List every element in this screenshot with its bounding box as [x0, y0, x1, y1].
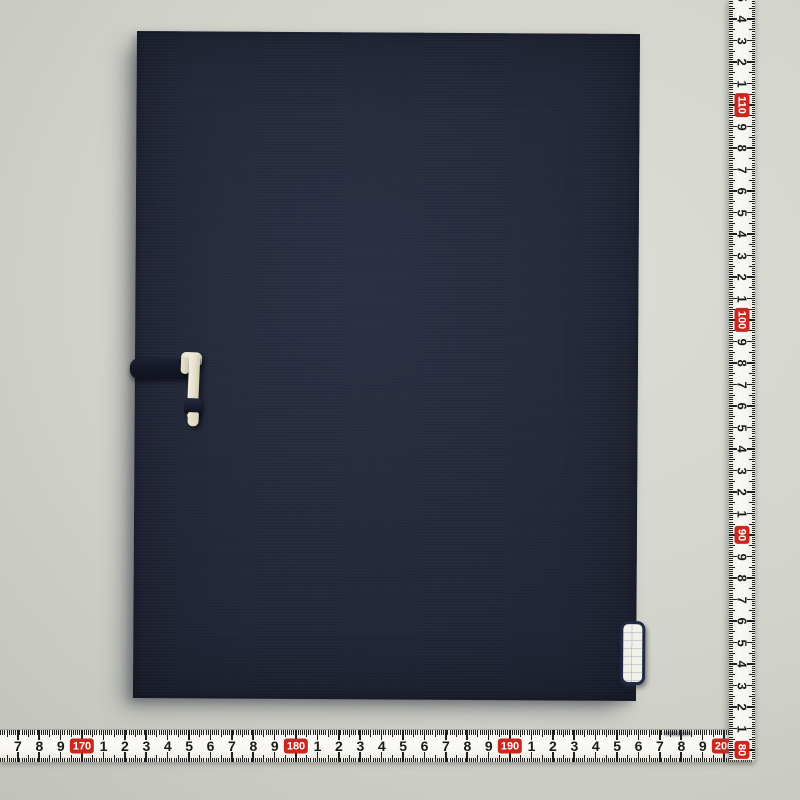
ruler-tick: [422, 758, 423, 763]
ruler-tick: [752, 111, 756, 112]
clasp-hook: [177, 350, 214, 433]
ruler-tick: [729, 455, 733, 456]
ruler-tick: [729, 395, 735, 396]
ruler-tick: [150, 758, 151, 763]
ruler-tick: [729, 668, 733, 669]
ruler-tick: [248, 758, 249, 763]
ruler-tick: [729, 96, 733, 97]
ruler-tick: [726, 730, 727, 735]
ruler-tick: [122, 730, 123, 735]
ruler-tick: [26, 730, 27, 735]
ruler-tick: [437, 758, 438, 763]
ruler-tick: [347, 758, 348, 763]
ruler-tick: [96, 730, 97, 735]
ruler-tick: [392, 730, 393, 737]
ruler-tick: [729, 156, 733, 157]
ruler-tick: [47, 730, 48, 735]
ruler-tick: [729, 605, 733, 606]
ruler-tick: [729, 266, 735, 267]
ruler-tick: [379, 758, 380, 763]
ruler-tick: [45, 730, 46, 735]
ruler-tick: [197, 758, 198, 763]
ruler-tick: [752, 756, 756, 757]
ruler-tick: [752, 580, 756, 581]
ruler-tick: [729, 307, 733, 308]
ruler-label: 8: [35, 738, 43, 754]
ruler-tick: [452, 758, 453, 763]
ruler-tick: [729, 747, 733, 748]
ruler-tick: [752, 326, 756, 327]
ruler-tick: [729, 225, 733, 226]
ruler-tick: [505, 730, 506, 735]
ruler-tick: [752, 754, 756, 755]
ruler-tick: [729, 279, 733, 280]
ruler-tick: [752, 747, 756, 748]
ruler-tick: [752, 311, 756, 312]
ruler-tick: [569, 758, 570, 763]
ruler-tick: [752, 367, 756, 368]
ruler-tick: [111, 758, 112, 763]
ruler-tick: [752, 98, 756, 99]
ruler-tick: [752, 461, 756, 462]
ruler-tick: [133, 758, 134, 763]
ruler-tick: [752, 672, 756, 673]
ruler-tick: [729, 659, 733, 660]
ruler-tick: [729, 124, 733, 125]
ruler-tick: [308, 758, 309, 763]
ruler-tick: [752, 737, 756, 738]
ruler-tick: [56, 758, 57, 763]
ruler-tick: [270, 758, 271, 763]
ruler-tick: [520, 755, 521, 762]
ruler-tick: [199, 755, 200, 762]
ruler-tick: [729, 623, 733, 624]
ruler-tick: [752, 511, 756, 512]
ruler-tick: [752, 281, 756, 282]
ruler-tick: [729, 631, 735, 632]
ruler-tick: [257, 758, 258, 763]
ruler-tick: [752, 442, 756, 443]
ruler-tick: [332, 730, 333, 735]
ruler-tick: [729, 42, 733, 43]
ruler-tick: [137, 758, 138, 763]
ruler-tick: [752, 238, 756, 239]
ruler-tick: [729, 199, 733, 200]
ruler-label-red: 170: [70, 739, 94, 754]
ruler-tick: [729, 145, 733, 146]
ruler-tick: [281, 758, 282, 763]
ruler-tick: [729, 98, 733, 99]
ruler-tick: [752, 74, 756, 75]
ruler-tick: [752, 421, 756, 422]
ruler-tick: [752, 236, 756, 237]
ruler-tick: [105, 758, 106, 763]
ruler-tick: [752, 666, 756, 667]
ruler-tick: [499, 730, 500, 737]
ruler-tick: [655, 730, 656, 735]
ruler-tick: [729, 709, 733, 710]
ruler-tick: [752, 431, 756, 432]
ruler-tick: [729, 182, 733, 183]
ruler-tick: [392, 755, 393, 762]
ruler-tick: [729, 698, 733, 699]
ruler-tick: [729, 666, 733, 667]
ruler-tick: [11, 730, 12, 735]
ruler-tick: [700, 730, 701, 735]
ruler-tick: [729, 143, 733, 144]
ruler-label: 1: [735, 80, 750, 87]
ruler-tick: [411, 758, 412, 763]
ruler-tick: [749, 502, 755, 503]
ruler-tick: [295, 752, 297, 762]
ruler-tick: [176, 730, 177, 735]
ruler-tick: [752, 31, 756, 32]
ruler-tick: [713, 755, 714, 762]
ruler-tick: [229, 730, 230, 735]
ruler-tick: [203, 758, 204, 763]
ruler-tick: [749, 51, 755, 52]
ruler-tick: [752, 457, 756, 458]
ruler-tick: [752, 268, 756, 269]
ruler-tick: [752, 70, 756, 71]
ruler-tick: [206, 730, 207, 735]
ruler-tick: [107, 730, 108, 735]
ruler-tick: [471, 730, 472, 735]
ruler-tick: [161, 758, 162, 763]
ruler-tick: [729, 173, 733, 174]
ruler-tick: [206, 758, 207, 763]
ruler-tick: [729, 12, 733, 13]
ruler-tick: [729, 378, 733, 379]
ruler-tick: [319, 758, 320, 763]
ruler-tick: [32, 758, 33, 763]
ruler-tick: [447, 758, 448, 763]
ruler-tick: [246, 730, 247, 735]
ruler-tick: [518, 730, 519, 735]
ruler-tick: [749, 309, 755, 310]
ruler-tick: [383, 730, 384, 735]
ruler-tick: [752, 296, 756, 297]
ruler-tick: [156, 730, 157, 737]
ruler-tick: [75, 730, 76, 735]
ruler-tick: [343, 730, 344, 735]
ruler-tick: [67, 730, 68, 735]
ruler-tick: [729, 300, 733, 301]
ruler-tick: [584, 730, 585, 737]
ruler-tick: [28, 730, 29, 737]
ruler-tick: [156, 755, 157, 762]
ruler-tick: [752, 242, 756, 243]
ruler-tick: [649, 755, 650, 762]
ruler-tick: [729, 700, 733, 701]
ruler-tick: [64, 758, 65, 763]
ruler-tick: [729, 408, 733, 409]
ruler-tick: [729, 66, 733, 67]
ruler-tick: [729, 702, 733, 703]
ruler-tick: [717, 758, 718, 763]
ruler-label: 9: [271, 738, 279, 754]
ruler-tick: [752, 668, 756, 669]
ruler-tick: [114, 755, 115, 762]
ruler-tick: [729, 560, 733, 561]
ruler-tick: [752, 292, 756, 293]
ruler-label: 9: [57, 738, 65, 754]
ruler-tick: [752, 651, 756, 652]
ruler-tick: [752, 429, 756, 430]
ruler-tick: [752, 724, 756, 725]
ruler-tick: [729, 737, 733, 738]
ruler-tick: [298, 730, 299, 735]
ruler-tick: [546, 730, 547, 735]
ruler-tick: [353, 758, 354, 763]
ruler-tick: [233, 758, 234, 763]
ruler-tick: [548, 730, 549, 735]
ruler-tick: [236, 758, 237, 763]
ruler-tick: [752, 479, 756, 480]
ruler-tick: [602, 730, 603, 735]
ruler-tick: [749, 94, 755, 95]
ruler-tick: [244, 758, 245, 763]
ruler-label: 1: [314, 738, 322, 754]
ruler-tick: [729, 85, 733, 86]
ruler-tick: [118, 758, 119, 763]
ruler-tick: [713, 730, 714, 737]
ruler-tick: [355, 758, 356, 763]
ruler-tick: [542, 755, 543, 762]
ruler-tick: [0, 730, 1, 735]
ruler-tick: [752, 519, 756, 520]
ruler-tick: [729, 734, 733, 735]
ruler-tick: [752, 208, 756, 209]
ruler-tick: [752, 347, 756, 348]
ruler-tick: [563, 730, 564, 737]
ruler-tick: [77, 730, 78, 735]
ruler-tick: [749, 137, 755, 138]
ruler-tick: [631, 758, 632, 763]
ruler-label: 3: [735, 252, 750, 259]
ruler-tick: [435, 755, 436, 762]
ruler-tick: [546, 758, 547, 763]
ruler-tick: [582, 730, 583, 735]
ruler-tick: [462, 758, 463, 763]
ruler-tick: [629, 730, 630, 735]
ruler-tick: [69, 758, 70, 763]
ruler-label: 9: [699, 738, 707, 754]
ruler-tick: [426, 730, 427, 735]
ruler-tick: [752, 270, 756, 271]
ruler-tick: [276, 730, 277, 735]
ruler-tick: [749, 481, 755, 482]
ruler-tick: [729, 743, 733, 744]
ruler-tick: [729, 55, 733, 56]
ruler-tick: [653, 730, 654, 735]
ruler-tick: [484, 758, 485, 763]
ruler-tick: [129, 730, 130, 735]
edge-label: [620, 621, 645, 685]
ruler-tick: [201, 758, 202, 763]
ruler-tick: [752, 627, 756, 628]
ruler-tick: [729, 739, 735, 740]
ruler-tick: [752, 132, 756, 133]
ruler-tick: [729, 246, 733, 247]
ruler-tick: [345, 730, 346, 735]
ruler-tick: [366, 758, 367, 763]
ruler-tick: [729, 214, 733, 215]
ruler-tick: [458, 730, 459, 735]
ruler-tick: [752, 117, 756, 118]
ruler-tick: [336, 730, 337, 735]
ruler-tick: [729, 49, 733, 50]
ruler-tick: [657, 758, 658, 763]
ruler-tick: [319, 730, 320, 735]
ruler-tick: [94, 758, 95, 763]
ruler-tick: [729, 532, 733, 533]
ruler-tick: [120, 758, 121, 763]
ruler-tick: [623, 730, 624, 735]
ruler-tick: [729, 651, 733, 652]
ruler-tick: [373, 758, 374, 763]
ruler-tick: [197, 730, 198, 735]
ruler-tick: [729, 457, 733, 458]
ruler-tick: [729, 537, 733, 538]
ruler-tick: [729, 171, 733, 172]
ruler-tick: [749, 201, 755, 202]
ruler-tick: [58, 758, 59, 763]
ruler-tick: [729, 111, 733, 112]
ruler-tick: [729, 165, 733, 166]
ruler-tick: [524, 758, 525, 763]
ruler-tick: [729, 373, 735, 374]
ruler-tick: [289, 730, 290, 735]
ruler-tick: [325, 730, 326, 735]
ruler-tick: [41, 758, 42, 763]
ruler-tick: [576, 758, 577, 763]
ruler-tick: [238, 730, 239, 735]
ruler-tick: [430, 758, 431, 763]
ruler-tick: [259, 730, 260, 735]
ruler-tick: [752, 698, 756, 699]
ruler-tick: [154, 730, 155, 735]
ruler-tick: [752, 139, 756, 140]
ruler-tick: [729, 38, 733, 39]
ruler-label: 4: [164, 738, 172, 754]
ruler-tick: [752, 197, 756, 198]
ruler-tick: [729, 193, 733, 194]
ruler-tick: [752, 466, 756, 467]
ruler-label: 3: [356, 738, 364, 754]
ruler-tick: [752, 451, 756, 452]
ruler-tick: [698, 758, 699, 763]
ruler-tick: [644, 730, 645, 735]
ruler-tick: [407, 758, 408, 763]
ruler-tick: [729, 719, 733, 720]
ruler-tick: [24, 730, 25, 735]
ruler-tick: [706, 730, 707, 735]
ruler-tick: [126, 758, 127, 763]
ruler-tick: [694, 730, 695, 735]
ruler-tick: [642, 758, 643, 763]
ruler-tick: [270, 730, 271, 735]
ruler-tick: [529, 730, 530, 735]
ruler-tick: [729, 438, 735, 439]
ruler-label: 8: [735, 575, 750, 582]
ruler-label: 1: [100, 738, 108, 754]
ruler-tick: [729, 638, 733, 639]
ruler-tick: [729, 500, 733, 501]
ruler-tick: [729, 485, 733, 486]
ruler-tick: [752, 371, 756, 372]
ruler-tick: [462, 730, 463, 735]
ruler-tick: [368, 730, 369, 735]
ruler-tick: [752, 500, 756, 501]
ruler-tick: [323, 730, 324, 735]
ruler-tick: [752, 569, 756, 570]
ruler-tick: [752, 741, 756, 742]
ruler-tick: [646, 758, 647, 763]
ruler-tick: [362, 730, 363, 735]
ruler-tick: [729, 347, 733, 348]
ruler-tick: [302, 730, 303, 735]
ruler-tick: [227, 758, 228, 763]
ruler-tick: [729, 102, 733, 103]
ruler-tick: [729, 322, 733, 323]
ruler-label: 2: [121, 738, 129, 754]
ruler-tick: [285, 755, 286, 762]
ruler-tick: [729, 68, 733, 69]
ruler-tick: [729, 72, 735, 73]
ruler-tick: [752, 120, 756, 121]
ruler-tick: [4, 730, 5, 735]
ruler-tick: [752, 227, 756, 228]
ruler-tick: [752, 14, 756, 15]
ruler-tick: [345, 758, 346, 763]
ruler-tick: [88, 730, 89, 735]
ruler-tick: [450, 730, 451, 735]
ruler-tick: [752, 608, 756, 609]
ruler-tick: [752, 165, 756, 166]
ruler-tick: [729, 670, 733, 671]
ruler-tick: [385, 730, 386, 735]
ruler-tick: [752, 171, 756, 172]
ruler-tick: [118, 730, 119, 735]
ruler-tick: [163, 758, 164, 763]
ruler-tick: [729, 681, 733, 682]
ruler-label: 3: [570, 738, 578, 754]
ruler-tick: [729, 554, 733, 555]
ruler-tick: [321, 730, 322, 735]
ruler-tick: [610, 758, 611, 763]
ruler-tick: [218, 730, 219, 735]
ruler-tick: [133, 730, 134, 735]
ruler-tick: [729, 494, 733, 495]
ruler-tick: [729, 141, 733, 142]
ruler-tick: [711, 758, 712, 763]
ruler-tick: [469, 758, 470, 763]
ruler-tick: [729, 197, 733, 198]
ruler-tick: [180, 758, 181, 763]
ruler-tick: [52, 758, 53, 763]
ruler-tick: [364, 730, 365, 735]
ruler-label: 4: [735, 16, 750, 23]
ruler-tick: [223, 730, 224, 735]
ruler-tick: [749, 330, 755, 331]
ruler-tick: [533, 758, 534, 763]
ruler-tick: [749, 158, 755, 159]
ruler-tick: [627, 730, 628, 737]
ruler-tick: [443, 730, 444, 735]
ruler-tick: [503, 758, 504, 763]
ruler-tick: [15, 758, 16, 763]
